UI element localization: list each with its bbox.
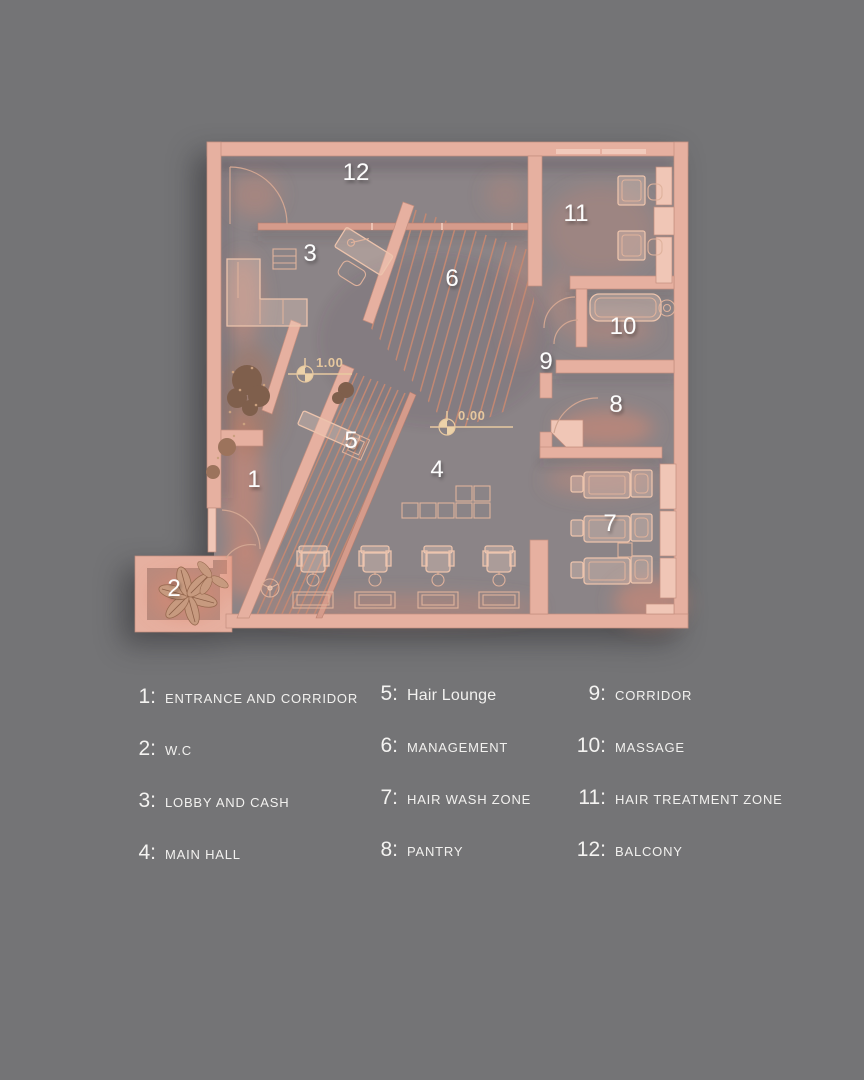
legend-number: 1: (132, 685, 156, 709)
elevation-value-1: 1.00 (316, 355, 343, 370)
room-number-2: 2 (167, 575, 180, 602)
legend-number: 5: (368, 682, 398, 706)
page: { "background_color": "#747476", "plan":… (0, 0, 864, 1080)
legend-label: MASSAGE (615, 740, 685, 755)
legend-number: 6: (368, 734, 398, 758)
room-number-8: 8 (609, 391, 622, 418)
legend-column-2: 5:Hair Lounge 6:MANAGEMENT 7:HAIR WASH Z… (368, 682, 531, 860)
legend-item-9: 9:CORRIDOR (568, 682, 783, 704)
legend-item-6: 6:MANAGEMENT (368, 734, 531, 756)
legend-number: 8: (368, 838, 398, 862)
legend-number: 7: (368, 786, 398, 810)
room-number-5: 5 (344, 427, 357, 454)
legend-label: W.C (165, 743, 192, 758)
legend-label: BALCONY (615, 844, 683, 859)
room-number-7: 7 (603, 510, 616, 537)
room-number-6: 6 (445, 265, 458, 292)
legend-column-3: 9:CORRIDOR 10:MASSAGE 11:HAIR TREATMENT … (568, 682, 783, 860)
legend-item-5: 5:Hair Lounge (368, 682, 531, 704)
legend-label: LOBBY AND CASH (165, 795, 289, 810)
legend-number: 9: (568, 682, 606, 706)
room-number-1: 1 (247, 466, 260, 493)
legend-number: 4: (132, 841, 156, 865)
legend-label: MANAGEMENT (407, 740, 508, 755)
legend-item-10: 10:MASSAGE (568, 734, 783, 756)
legend-label: CORRIDOR (615, 688, 692, 703)
legend-label: HAIR WASH ZONE (407, 792, 531, 807)
legend-label: HAIR TREATMENT ZONE (615, 792, 783, 807)
legend-number: 10: (568, 734, 606, 758)
legend-label: MAIN HALL (165, 847, 241, 862)
legend-number: 3: (132, 789, 156, 813)
legend-label: PANTRY (407, 844, 463, 859)
room-number-12: 12 (343, 159, 370, 186)
floor-plan: 1.00 0.00 1 2 3 4 5 6 7 8 9 10 11 12 (0, 0, 864, 1080)
room-number-11: 11 (564, 200, 589, 227)
room-number-10: 10 (610, 313, 637, 340)
room-number-3: 3 (303, 240, 316, 267)
legend-item-1: 1:ENTRANCE AND CORRIDOR (132, 685, 358, 707)
room-number-9: 9 (539, 348, 552, 375)
legend-number: 11: (568, 786, 606, 810)
legend-item-11: 11:HAIR TREATMENT ZONE (568, 786, 783, 808)
elevation-value-0: 0.00 (458, 408, 485, 423)
legend-item-8: 8:PANTRY (368, 838, 531, 860)
legend-item-7: 7:HAIR WASH ZONE (368, 786, 531, 808)
legend-label: ENTRANCE AND CORRIDOR (165, 691, 358, 706)
legend-column-1: 1:ENTRANCE AND CORRIDOR 2:W.C 3:LOBBY AN… (132, 685, 358, 863)
legend-item-4: 4:MAIN HALL (132, 841, 358, 863)
legend-item-12: 12:BALCONY (568, 838, 783, 860)
legend-number: 2: (132, 737, 156, 761)
legend-item-3: 3:LOBBY AND CASH (132, 789, 358, 811)
legend-label: Hair Lounge (407, 687, 496, 705)
room-number-4: 4 (430, 456, 443, 483)
legend-number: 12: (568, 838, 606, 862)
legend-item-2: 2:W.C (132, 737, 358, 759)
plan-render: 1.00 0.00 1 2 3 4 5 6 7 8 9 10 11 12 (135, 142, 688, 646)
